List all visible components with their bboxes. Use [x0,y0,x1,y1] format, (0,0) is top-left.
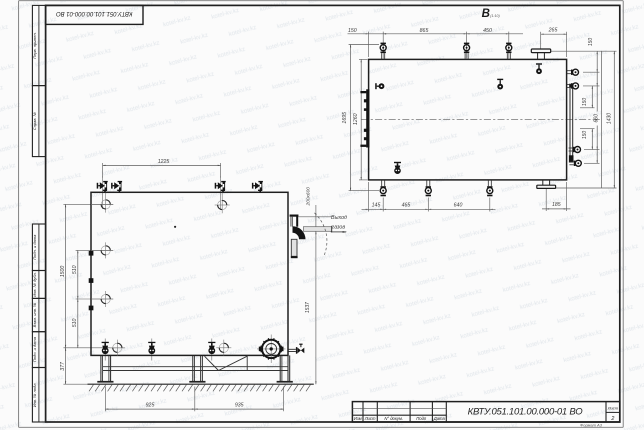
svg-text:КВТУ.051.101.00.000-01 ВО: КВТУ.051.101.00.000-01 ВО [56,10,133,16]
svg-text:(1:10): (1:10) [490,14,499,18]
svg-text:газов: газов [332,225,346,231]
svg-text:Инв. № подл.: Инв. № подл. [32,382,37,407]
svg-text:640: 640 [454,203,463,209]
svg-text:1260: 1260 [353,113,359,125]
svg-text:Инв. № дубл.: Инв. № дубл. [32,272,37,297]
svg-text:150: 150 [588,38,594,47]
svg-text:265: 265 [548,27,558,33]
svg-text:Перв. примен.: Перв. примен. [32,32,37,59]
svg-text:Изм: Изм [354,416,362,421]
svg-text:Подп: Подп [416,416,427,421]
svg-text:510: 510 [72,265,78,274]
svg-text:КВТУ.051.101.00.000-01 ВО: КВТУ.051.101.00.000-01 ВО [468,406,584,417]
svg-text:660: 660 [593,114,599,123]
svg-text:865: 865 [420,28,429,34]
svg-text:1500: 1500 [60,266,66,278]
svg-text:150: 150 [348,28,357,34]
svg-text:377: 377 [60,361,66,371]
svg-text:Справ. №: Справ. № [32,111,37,130]
svg-text:Лист: Лист [607,405,619,410]
svg-text:200х600: 200х600 [305,187,311,207]
svg-text:Формат А3: Формат А3 [580,423,603,428]
svg-text:Подп. и дата: Подп. и дата [32,234,37,260]
svg-text:N° докум.: N° докум. [384,416,403,421]
svg-text:Подп. и дата: Подп. и дата [32,336,37,362]
svg-text:150: 150 [582,98,588,107]
svg-text:185: 185 [552,202,561,208]
svg-text:1430: 1430 [607,113,613,124]
svg-text:145: 145 [372,203,381,209]
svg-text:925: 925 [146,402,155,408]
svg-text:Дата: Дата [433,416,446,421]
svg-text:150: 150 [582,131,588,140]
svg-text:Взам. инв. №: Взам. инв. № [32,302,37,327]
svg-text:Лист: Лист [364,416,376,421]
svg-text:1225: 1225 [158,159,170,165]
svg-text:В: В [482,8,490,20]
svg-text:Выход: Выход [331,215,347,221]
svg-text:450: 450 [483,28,492,34]
svg-text:2: 2 [610,416,614,422]
svg-text:935: 935 [235,402,244,408]
svg-text:1537: 1537 [305,302,311,313]
svg-text:465: 465 [402,203,411,209]
svg-text:1695: 1695 [342,112,348,124]
svg-text:510: 510 [72,318,78,327]
